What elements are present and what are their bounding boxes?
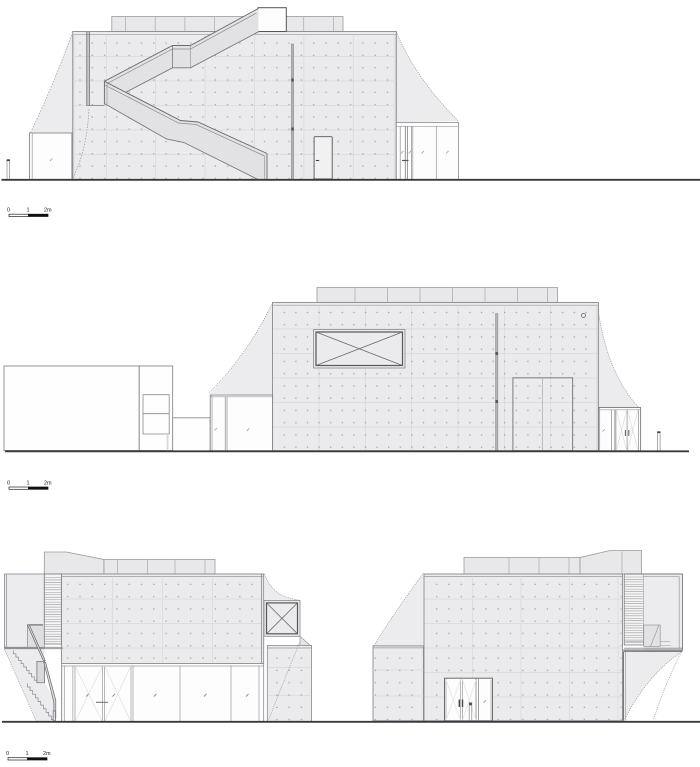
svg-text:1: 1	[27, 481, 30, 487]
svg-text:2m: 2m	[44, 481, 52, 487]
svg-text:2m: 2m	[43, 751, 51, 757]
svg-text:2m: 2m	[44, 208, 52, 214]
svg-text:0: 0	[7, 208, 10, 214]
svg-text:0: 0	[6, 751, 9, 757]
svg-text:1: 1	[27, 208, 30, 214]
svg-text:0: 0	[7, 481, 10, 487]
svg-text:1: 1	[26, 751, 29, 757]
